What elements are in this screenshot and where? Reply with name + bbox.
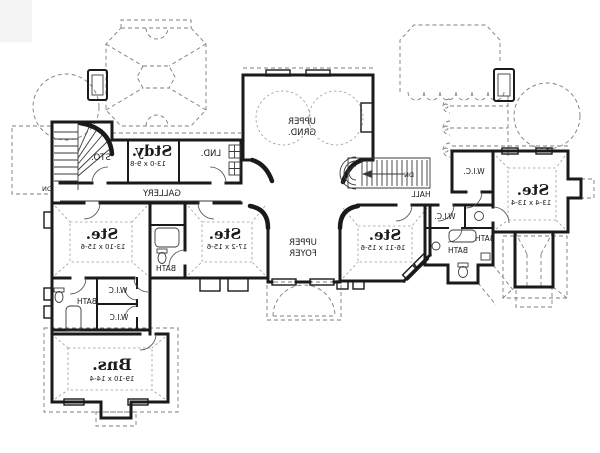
suite-left-dims: 13-10 x 15-6 (80, 243, 125, 251)
floor-plan-page: DN STO. Stdy. 13-0 x 9-8 LND. GALLERY UP… (0, 0, 600, 453)
bonus-label: Bns. (92, 355, 132, 374)
bonus-dims: 19-10 x 14-4 (89, 375, 134, 383)
octagon-roof (106, 20, 206, 126)
stairs-left-dn-label: DN (42, 185, 52, 193)
roof-top-right (400, 25, 508, 158)
suite-center-right-label: Ste. (369, 226, 402, 244)
wic-left-lower-label: W.I.C (110, 313, 129, 322)
suite-right-dims: 13-4 x 13-4 (510, 199, 551, 207)
suite-right-label: Ste. (517, 181, 550, 199)
gallery-label: GALLERY (142, 189, 181, 199)
toilet-center (157, 249, 167, 264)
study-dims: 13-0 x 9-8 (130, 160, 166, 168)
chimney-right (494, 69, 514, 101)
laundry-appliances (229, 145, 240, 175)
storage-label: STO. (91, 153, 111, 163)
study-label: Stdy. (132, 142, 172, 160)
suite-center-left-label: Ste. (209, 225, 242, 243)
tub-right (449, 230, 476, 242)
suite-left-label: Ste. (86, 225, 119, 243)
tub-left (66, 306, 81, 331)
bath-right-lower-label: BATH (448, 246, 468, 255)
stairs-center (340, 157, 430, 189)
labels-layer: DN STO. Stdy. 13-0 x 9-8 LND. GALLERY UP… (42, 117, 551, 383)
stairs-center-dn-label: DN (404, 171, 414, 179)
suite-center-right-dims: 16-11 x 15-6 (360, 244, 405, 252)
turret-roof-right (514, 83, 580, 149)
bath-center-label: BATH (156, 264, 176, 273)
deck-right (581, 179, 594, 198)
bath-left-label: BATH (77, 297, 97, 306)
toilet-right (458, 263, 468, 278)
sink-right-3 (481, 253, 490, 260)
roof-edge-lines (112, 68, 568, 146)
corner-artifact (0, 0, 32, 42)
upper-grand-line1: UPPER (288, 117, 316, 127)
wic-mid-right-label: W.I.C. (434, 212, 455, 221)
deck-outline-left (12, 126, 52, 194)
hall-label: HALL (411, 190, 431, 199)
upper-grand-line2: GRND. (288, 128, 316, 138)
suite-center-left-dims: 17-2 x 15-6 (206, 243, 247, 251)
bath-right-upper-label: BATH (475, 234, 495, 243)
toilet-left (54, 288, 64, 303)
tub-center (155, 228, 179, 247)
laundry-label: LND. (201, 149, 221, 159)
turret-roof-left (33, 74, 99, 140)
upper-foyer-line2: FOYER (289, 249, 317, 259)
upper-foyer-line1: UPPER (289, 238, 317, 248)
sink-right-2 (475, 212, 484, 221)
sink-right-1 (432, 242, 440, 250)
foyer-bay-roof (267, 282, 341, 320)
wic-upper-right-label: W.I.C. (463, 167, 484, 176)
floor-plan-drawing: DN STO. Stdy. 13-0 x 9-8 LND. GALLERY UP… (0, 0, 600, 453)
wic-left-upper-label: W.I.C (109, 286, 128, 295)
